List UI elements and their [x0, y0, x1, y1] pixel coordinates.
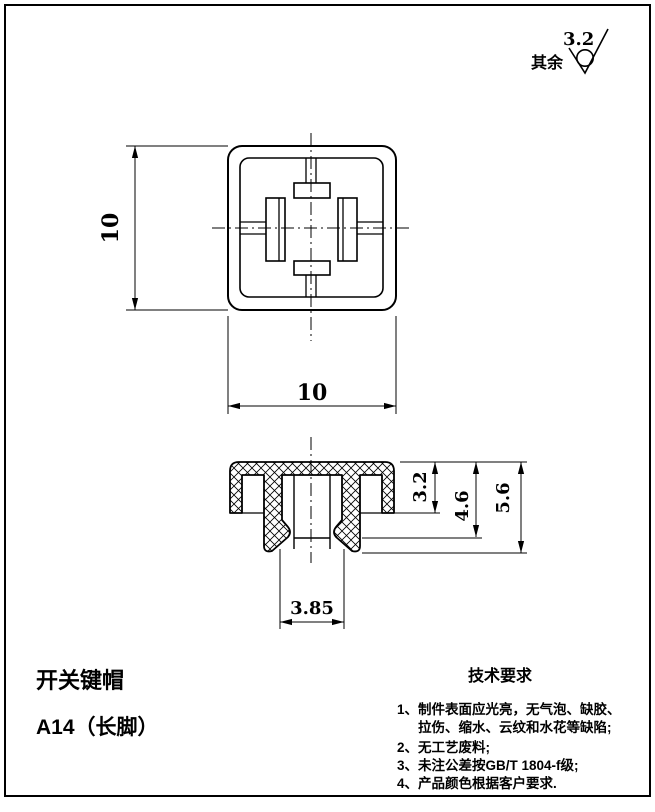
tech-requirement-line: 拉伤、缩水、云纹和水花等缺陷; — [418, 719, 612, 735]
part-name: 开关键帽 — [36, 668, 124, 693]
dim-cap-depth-value: 3.2 — [410, 471, 431, 502]
part-model: A14（长脚） — [36, 715, 159, 739]
dimension-stem-width: 3.85 — [280, 549, 344, 629]
section-view — [230, 437, 527, 563]
dimension-cap-depth: 3.2 — [410, 462, 435, 513]
dimension-top-view-height: 10 — [98, 146, 228, 310]
tech-requirement-line: 2、无工艺废料; — [397, 739, 490, 755]
dim-height-value: 10 — [98, 213, 124, 244]
dimension-inner-depth: 4.6 — [452, 462, 476, 537]
tech-requirements: 技术要求 1、制件表面应光亮，无气泡、缺胶、 拉伤、缩水、云纹和水花等缺陷; 2… — [397, 666, 621, 791]
roughness-value: 3.2 — [563, 29, 594, 50]
tech-requirement-line: 1、制件表面应光亮，无气泡、缺胶、 — [397, 701, 621, 717]
roughness-circle-icon — [577, 50, 593, 66]
roughness-symbol: 3.2 其余 — [531, 29, 608, 73]
bottom-rib-pad — [294, 261, 330, 275]
dimension-top-view-width: 10 — [228, 316, 396, 414]
left-rib-pad — [266, 198, 285, 261]
tech-requirements-title: 技术要求 — [468, 666, 533, 685]
dim-inner-depth-value: 4.6 — [452, 490, 473, 521]
drawing-sheet: 3.2 其余 10 10 — [0, 0, 655, 812]
right-rib-pad — [338, 198, 357, 261]
top-rib-pad — [294, 183, 330, 198]
dimension-total-height: 5.6 — [493, 462, 521, 553]
title-block: 开关键帽 A14（长脚） — [36, 668, 159, 739]
tech-requirement-line: 3、未注公差按GB/T 1804-f级; — [397, 757, 579, 773]
dim-total-height-value: 5.6 — [493, 482, 514, 513]
roughness-label: 其余 — [531, 53, 564, 72]
drawing-canvas: 3.2 其余 10 10 — [0, 0, 655, 812]
dim-stem-width-value: 3.85 — [290, 598, 334, 619]
top-view — [212, 133, 412, 341]
tech-requirement-line: 4、产品颜色根据客户要求. — [397, 775, 557, 791]
dim-width-value: 10 — [297, 380, 328, 406]
